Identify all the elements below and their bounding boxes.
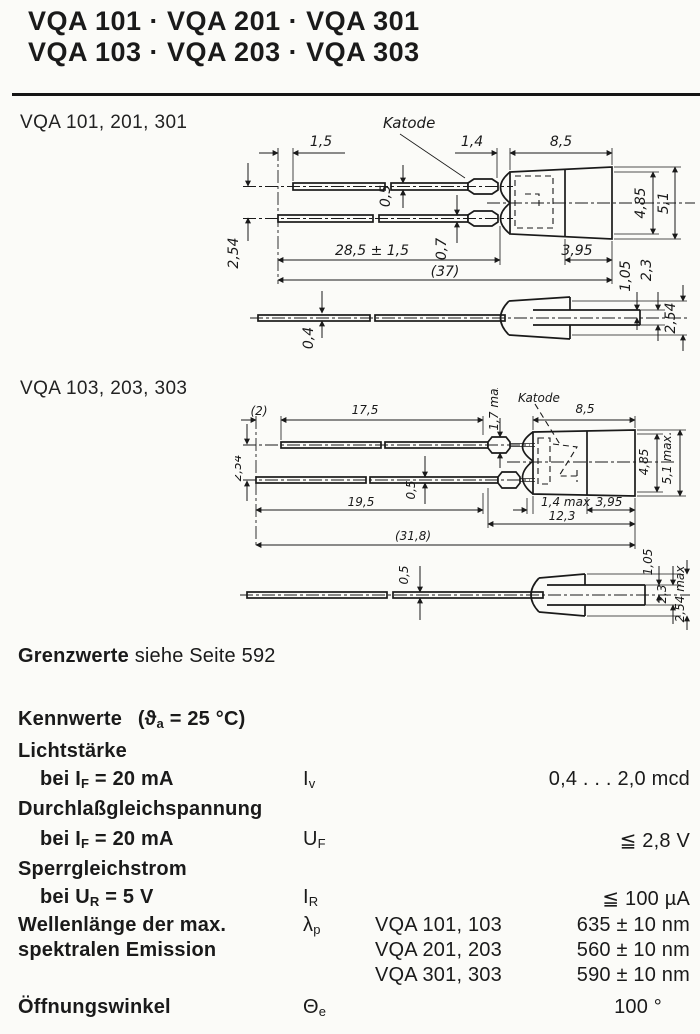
param-wellenlaenge-2: spektralen Emission: [18, 939, 216, 962]
dim-lead-thick-bot: 0,7: [434, 238, 450, 260]
param-oeffnung: Öffnungswinkel: [18, 996, 171, 1019]
dim-dome-len: 1,4: [461, 134, 483, 150]
dim-total-len: (37): [431, 264, 460, 280]
hidden-chip-lines: [535, 404, 577, 484]
param-durchlass: Durchlaßgleichspannung: [18, 798, 262, 821]
dim-tail-h: 2,3: [639, 259, 655, 281]
dim-body-total: 12,3: [549, 509, 576, 523]
dim-body-h-outer: 5,1: [656, 192, 672, 214]
dim-lead-pitch: 2,54: [226, 237, 242, 268]
dim-lead-len-bot: 19,5: [348, 495, 375, 509]
param-wellenlaenge-1: Wellenlänge der max.: [18, 914, 226, 937]
section-label-vqa101: VQA 101, 201, 301: [20, 112, 187, 134]
grenzwerte-bold: Grenzwerte: [18, 645, 129, 667]
value-theta-e: 100 °: [420, 996, 662, 1019]
dim-lead-thick: 0,5: [404, 480, 418, 499]
katode-label: Katode: [383, 114, 435, 132]
section-label-vqa103: VQA 103, 203, 303: [20, 378, 187, 400]
kennwerte-title: Kennwerte: [18, 708, 122, 730]
dim-body-h-inner: 4,85: [637, 449, 651, 476]
dim-total-len: (31,8): [395, 529, 431, 543]
grenzwerte-note: Grenzwerte siehe Seite 592: [18, 645, 276, 668]
page-title-line1: VQA 101 · VQA 201 · VQA 301: [28, 6, 420, 37]
dim-dome-len: 1,4 max: [541, 495, 591, 509]
dim-crimp-h: 1,7 max: [487, 388, 501, 431]
kennwerte-heading: Kennwerte (ϑa = 25 °C): [18, 708, 245, 731]
katode-label: Katode: [518, 391, 560, 405]
value-uf: ≦ 2,8 V: [420, 828, 690, 853]
cond-durchlass: bei IF = 20 mA: [40, 828, 174, 851]
dim-lead-offset: 1,5: [310, 134, 332, 150]
dim-cap-len: 3,95: [561, 243, 592, 259]
param-lichtstaerke: Lichtstärke: [18, 740, 127, 763]
symbol-ir: IR: [303, 886, 318, 909]
variant-value: 590 ± 10 nm: [420, 964, 690, 987]
kennwerte-condition: (ϑa = 25 °C): [138, 708, 246, 730]
dim-body-h-outer: 5,1 max.: [660, 432, 674, 485]
dim-flat-thick: 0,5: [397, 565, 411, 584]
dim-body-len: 8,5: [550, 134, 572, 150]
grenzwerte-rest: siehe Seite 592: [135, 645, 276, 667]
dim-cap-len: 3,95: [596, 495, 623, 509]
dim-tail-h: 2,3: [655, 584, 669, 603]
symbol-lambda-p: λp: [303, 914, 321, 937]
dim-tail-w: 2,54 max: [673, 565, 687, 623]
cond-sperr: bei UR = 5 V: [40, 886, 154, 909]
symbol-theta-e: Θe: [303, 996, 326, 1019]
symbol-uf: UF: [303, 828, 326, 851]
page-title-line2: VQA 103 · VQA 203 · VQA 303: [28, 37, 420, 68]
dim-body-h-inner: 4,85: [633, 187, 649, 218]
param-sperr: Sperrgleichstrom: [18, 858, 187, 881]
variant-value: 560 ± 10 nm: [420, 939, 690, 962]
dim-tail-half: 1,05: [618, 260, 634, 291]
header-rule: [12, 93, 700, 96]
hidden-chip-lines: [515, 176, 553, 228]
dim-lead-thick-top: 0,5: [378, 185, 394, 207]
dim-lead-offset: (2): [251, 404, 268, 418]
dim-lead-len: 28,5 ± 1,5: [335, 243, 409, 259]
dim-tail-half: 1,05: [641, 549, 655, 576]
datasheet-page: VQA 101 · VQA 201 · VQA 301 VQA 103 · VQ…: [0, 0, 700, 1034]
dim-tail-w: 2,54: [663, 302, 679, 333]
technical-drawing-vqa101: Katode 1,5 1,4 8,5 0,5 0,7 2,54 28,5 ± 1…: [225, 108, 700, 370]
variant-value: 635 ± 10 nm: [420, 914, 690, 937]
symbol-iv: Iv: [303, 768, 315, 791]
dim-body-len: 8,5: [575, 402, 594, 416]
technical-drawing-vqa103: Katode (2) 17,5 1,7 max 8,5 2,54 0,5 19,…: [235, 388, 700, 650]
value-iv: 0,4 . . . 2,0 mcd: [420, 768, 690, 791]
dim-lead-len-top: 17,5: [352, 403, 379, 417]
cond-lichtstaerke: bei IF = 20 mA: [40, 768, 174, 791]
value-ir: ≦ 100 µA: [420, 886, 690, 911]
extension-lines: [293, 134, 687, 335]
dim-flat-thick: 0,4: [301, 327, 317, 349]
led-side-view-outline: [256, 430, 635, 496]
dim-lead-pitch: 2,54: [235, 455, 244, 482]
